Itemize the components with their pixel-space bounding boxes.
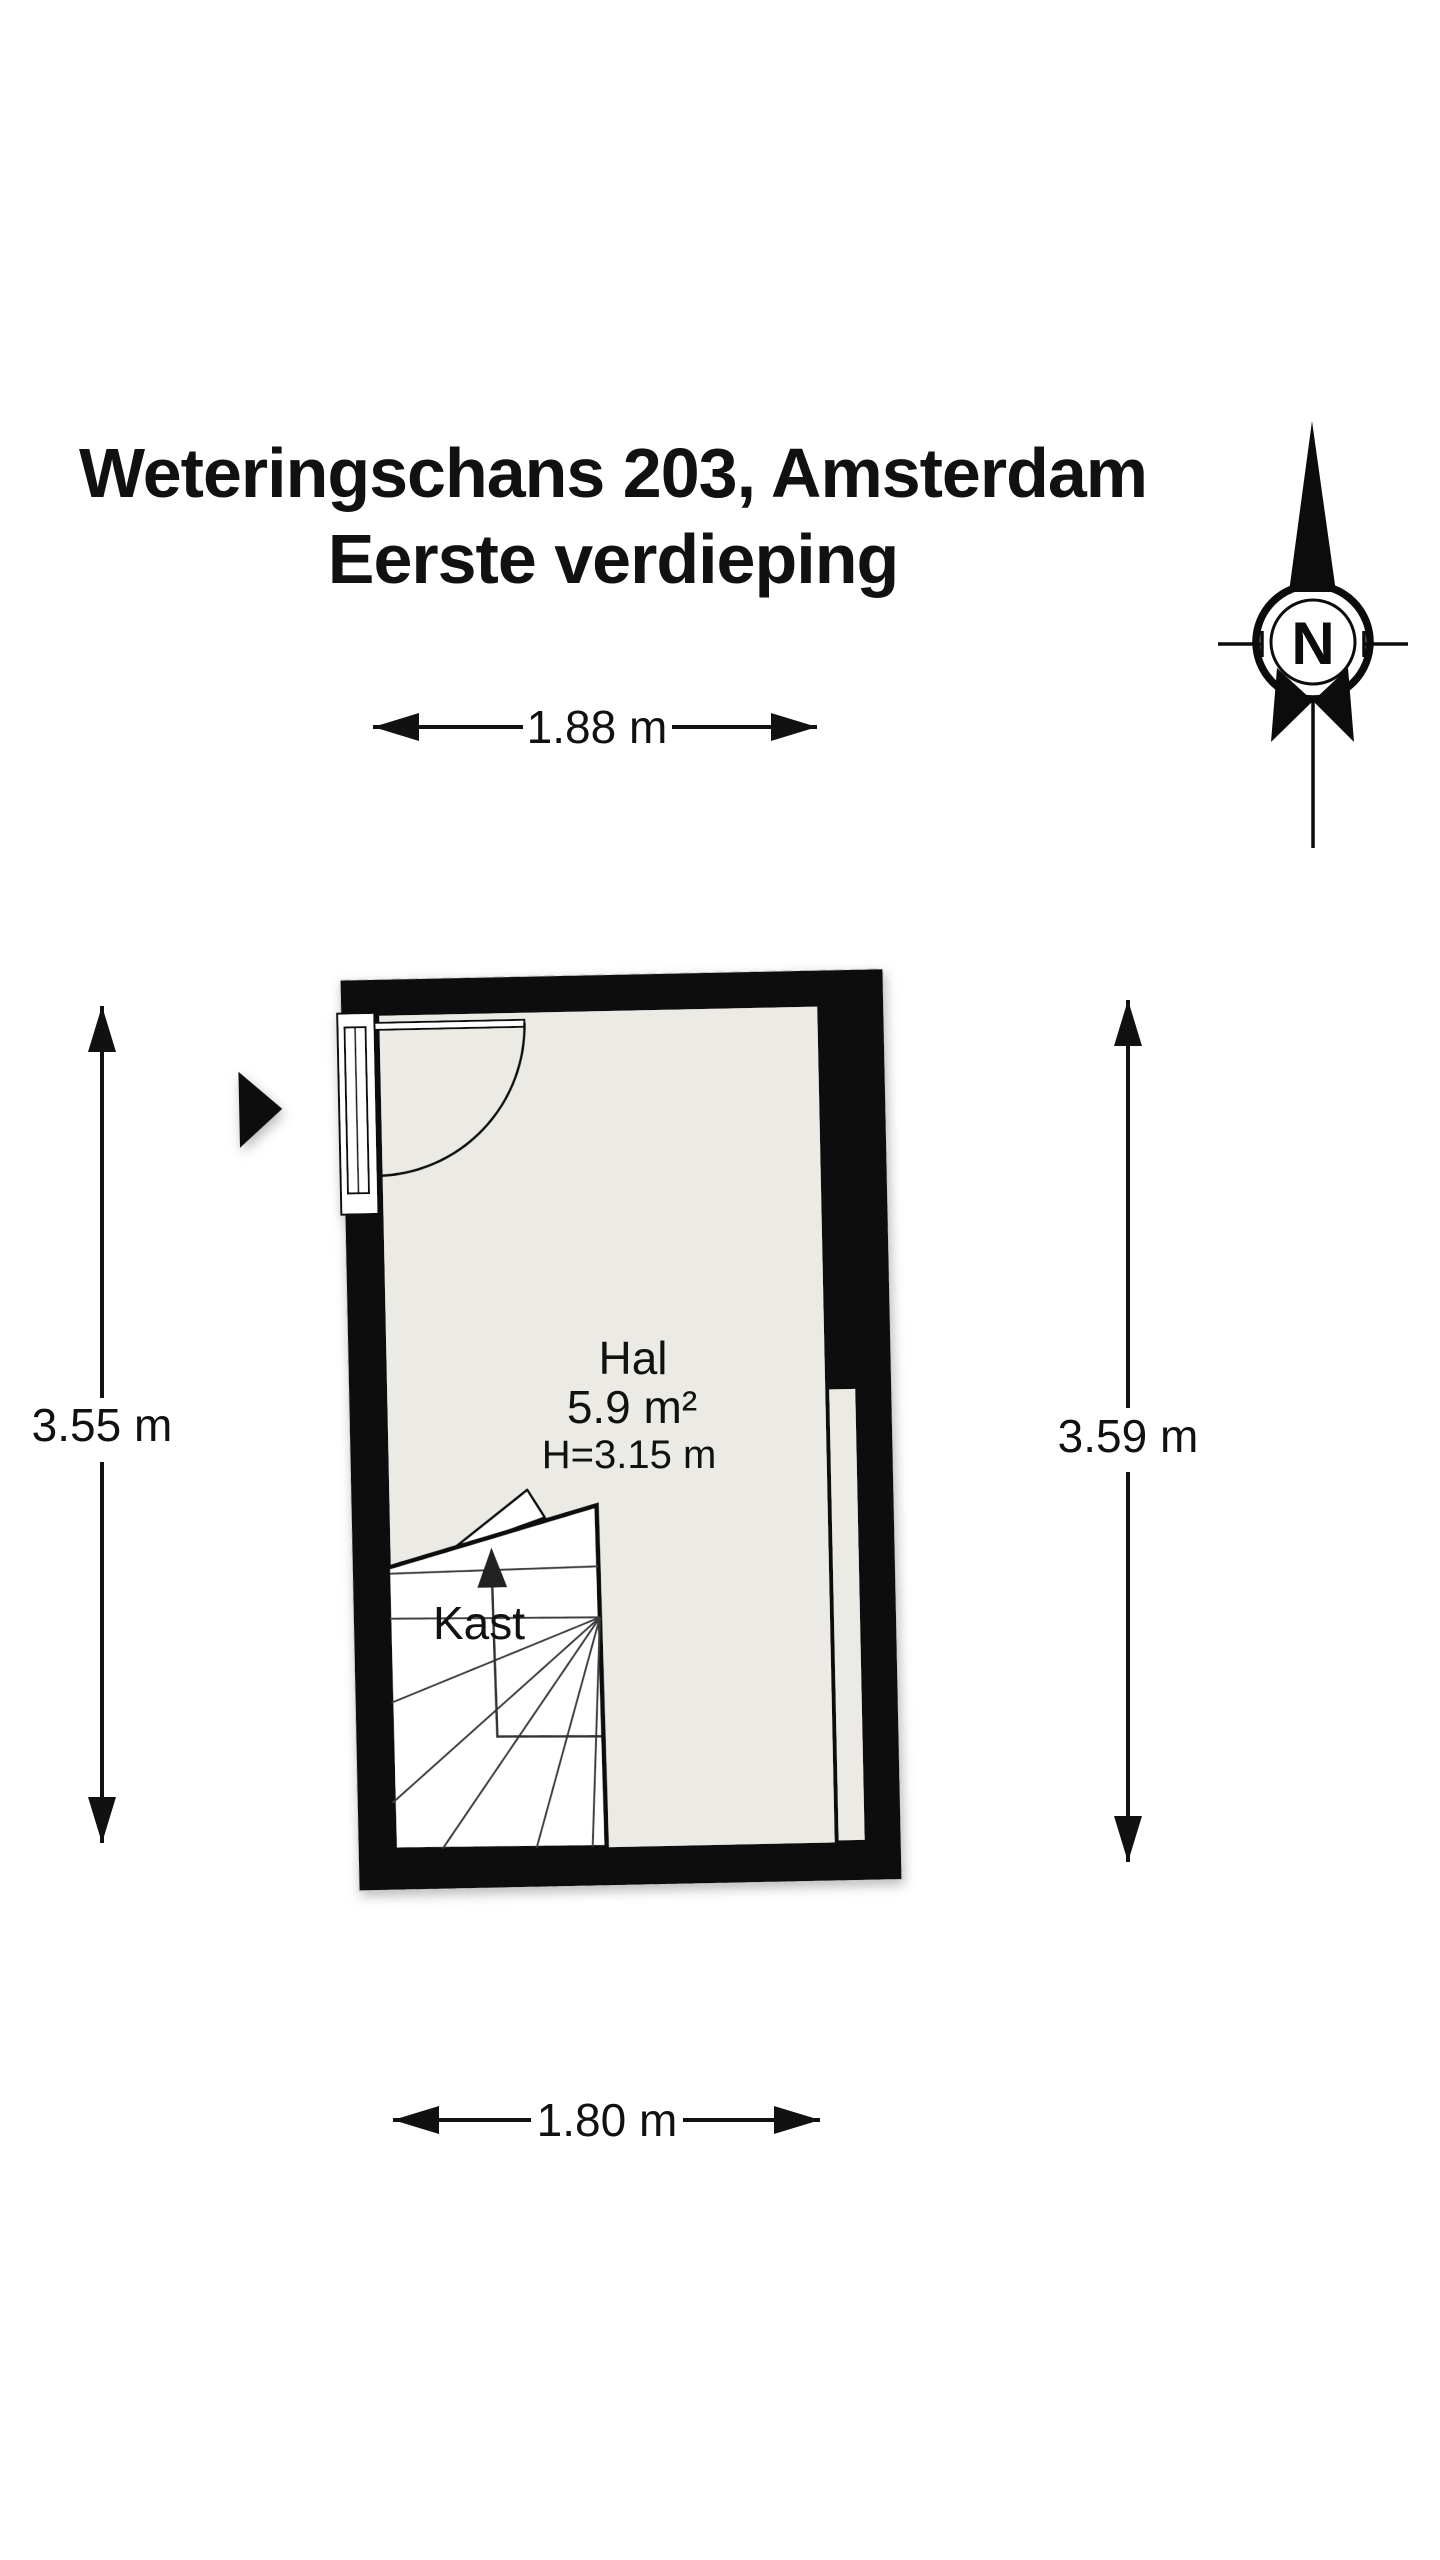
compass-north-label: N [1291, 610, 1334, 677]
stair-outline [387, 1505, 607, 1851]
dimension-top: 1.88 m [373, 701, 817, 753]
dimension-right-label: 3.59 m [1058, 1410, 1199, 1462]
arrow-left-icon [393, 2106, 439, 2134]
arrow-down-icon [1114, 1816, 1142, 1862]
dimension-bottom-label: 1.80 m [537, 2094, 678, 2146]
floorplan-page: { "title": { "line1": "Weteringschans 20… [0, 0, 1440, 2560]
arrow-down-icon [88, 1797, 116, 1843]
arrow-right-icon [771, 713, 817, 741]
compass-needle [1289, 421, 1336, 592]
dimension-left-label: 3.55 m [32, 1399, 173, 1451]
arrow-up-icon [88, 1006, 116, 1052]
entrance-arrow-icon [238, 1071, 283, 1148]
dimension-bottom: 1.80 m [393, 2094, 820, 2146]
north-compass-icon: N [1218, 421, 1408, 848]
arrow-up-icon [1114, 1000, 1142, 1046]
dimension-right: 3.59 m [1058, 1000, 1199, 1862]
room-height-label: H=3.15 m [542, 1433, 717, 1477]
floorplan-canvas: Hal 5.9 m² H=3.15 m Kast 1.88 m 1.80 m [0, 0, 1440, 2560]
dimension-top-label: 1.88 m [527, 701, 668, 753]
arrow-left-icon [373, 713, 419, 741]
arrow-right-icon [774, 2106, 820, 2134]
room-name-label: Hal [598, 1332, 667, 1384]
dimension-left: 3.55 m [32, 1006, 173, 1843]
closet-label: Kast [433, 1597, 525, 1649]
room-area-label: 5.9 m² [567, 1381, 697, 1433]
